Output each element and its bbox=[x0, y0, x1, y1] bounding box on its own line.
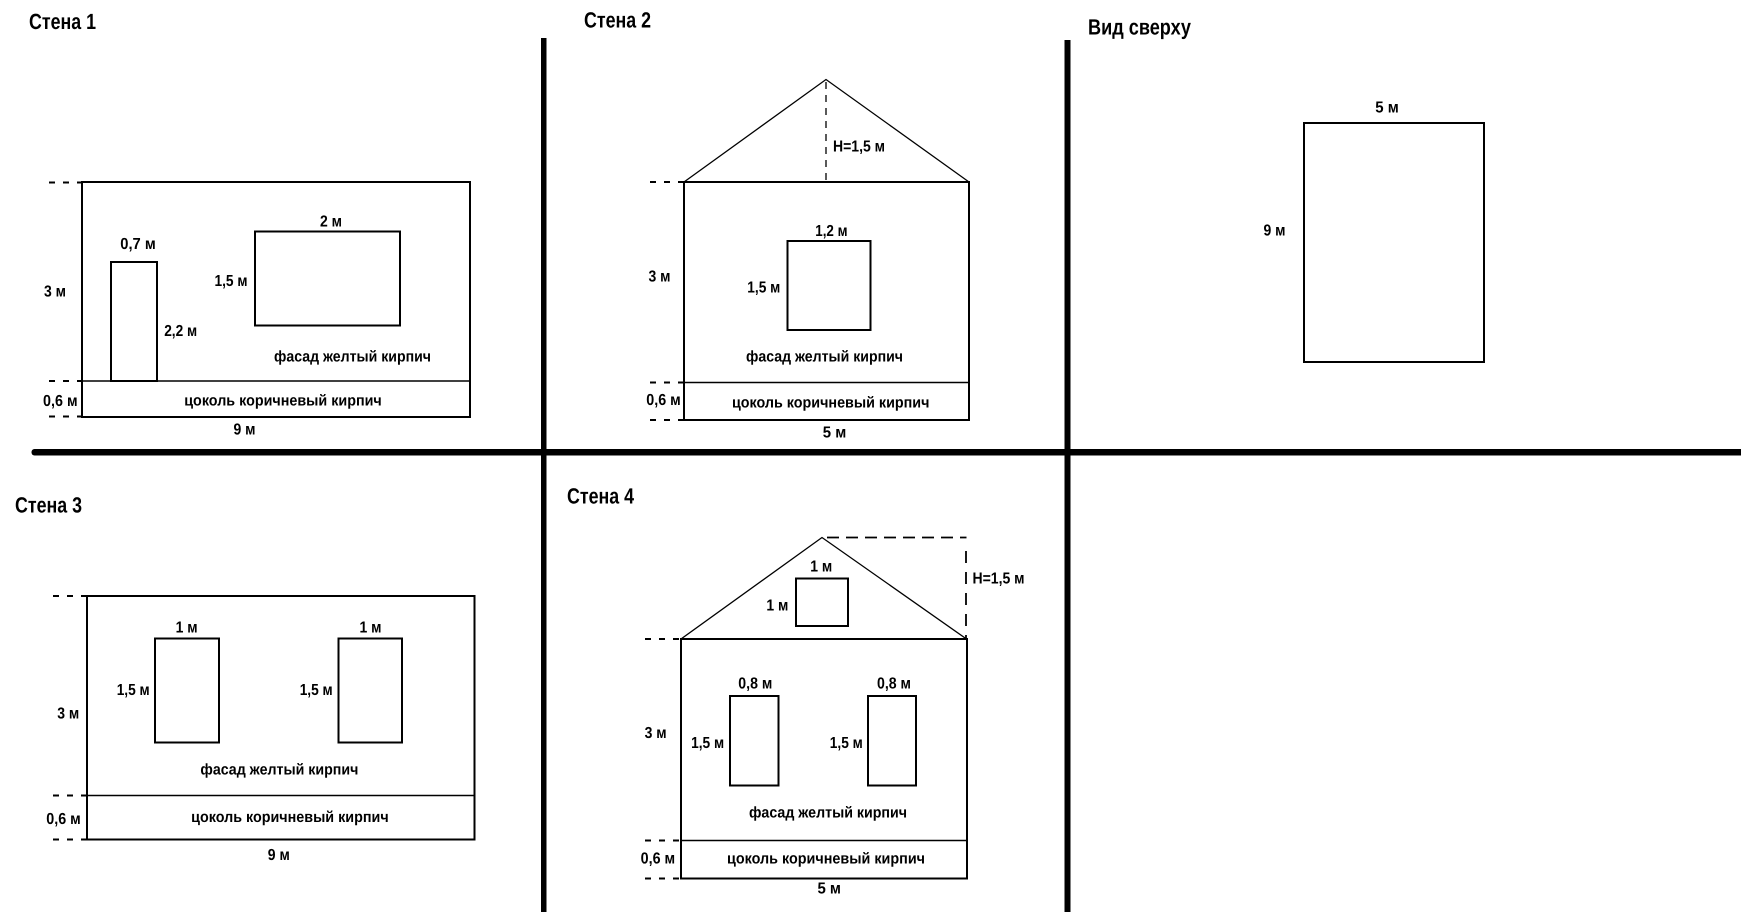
svg-text:1,5 м: 1,5 м bbox=[747, 280, 780, 297]
svg-text:9 м: 9 м bbox=[268, 847, 290, 864]
svg-text:0,8 м: 0,8 м bbox=[738, 676, 772, 693]
svg-text:2 м: 2 м bbox=[320, 214, 342, 231]
svg-text:0,6 м: 0,6 м bbox=[641, 851, 676, 868]
svg-text:фасад желтый кирпич: фасад желтый кирпич bbox=[274, 349, 431, 366]
svg-text:фасад желтый кирпич: фасад желтый кирпич bbox=[746, 349, 903, 366]
svg-text:0,6 м: 0,6 м bbox=[43, 393, 78, 410]
svg-text:1,2 м: 1,2 м bbox=[815, 223, 847, 240]
svg-text:Стена 2: Стена 2 bbox=[584, 8, 651, 33]
svg-text:0,6 м: 0,6 м bbox=[646, 392, 681, 409]
svg-text:9 м: 9 м bbox=[1264, 223, 1286, 240]
svg-text:цоколь коричневый кирпич: цоколь коричневый кирпич bbox=[191, 809, 389, 826]
svg-text:1,5 м: 1,5 м bbox=[117, 682, 150, 699]
svg-text:фасад желтый кирпич: фасад желтый кирпич bbox=[200, 762, 358, 779]
svg-text:0,8 м: 0,8 м bbox=[877, 676, 911, 693]
svg-text:1,5 м: 1,5 м bbox=[691, 735, 724, 752]
svg-text:1 м: 1 м bbox=[766, 598, 788, 615]
svg-text:9 м: 9 м bbox=[234, 422, 256, 439]
svg-text:3 м: 3 м bbox=[645, 725, 667, 742]
svg-text:цоколь коричневый кирпич: цоколь коричневый кирпич bbox=[727, 851, 925, 868]
svg-text:3 м: 3 м bbox=[649, 269, 671, 286]
svg-text:0,6 м: 0,6 м bbox=[46, 811, 81, 828]
svg-text:фасад желтый кирпич: фасад желтый кирпич bbox=[749, 805, 907, 822]
svg-text:1,5 м: 1,5 м bbox=[215, 273, 248, 290]
svg-text:цоколь коричневый кирпич: цоколь коричневый кирпич bbox=[732, 395, 930, 412]
svg-text:Вид сверху: Вид сверху bbox=[1088, 15, 1192, 40]
svg-text:3 м: 3 м bbox=[57, 705, 79, 722]
svg-text:цоколь коричневый кирпич: цоколь коричневый кирпич bbox=[184, 393, 382, 410]
svg-text:0,7 м: 0,7 м bbox=[120, 236, 156, 253]
svg-text:1 м: 1 м bbox=[360, 620, 382, 637]
svg-text:1,5 м: 1,5 м bbox=[830, 735, 863, 752]
svg-text:5 м: 5 м bbox=[1375, 100, 1399, 117]
svg-text:Стена 3: Стена 3 bbox=[15, 493, 82, 518]
svg-text:1 м: 1 м bbox=[176, 620, 198, 637]
svg-text:1 м: 1 м bbox=[810, 559, 832, 576]
svg-text:Стена 1: Стена 1 bbox=[29, 9, 96, 34]
svg-text:1,5 м: 1,5 м bbox=[300, 682, 333, 699]
svg-text:5 м: 5 м bbox=[823, 425, 847, 442]
svg-text:2,2 м: 2,2 м bbox=[164, 323, 197, 340]
svg-text:Стена 4: Стена 4 bbox=[567, 484, 635, 509]
svg-text:3 м: 3 м bbox=[44, 284, 66, 301]
svg-text:H=1,5 м: H=1,5 м bbox=[833, 139, 885, 156]
svg-text:5 м: 5 м bbox=[817, 881, 841, 898]
svg-text:H=1,5 м: H=1,5 м bbox=[973, 571, 1025, 588]
